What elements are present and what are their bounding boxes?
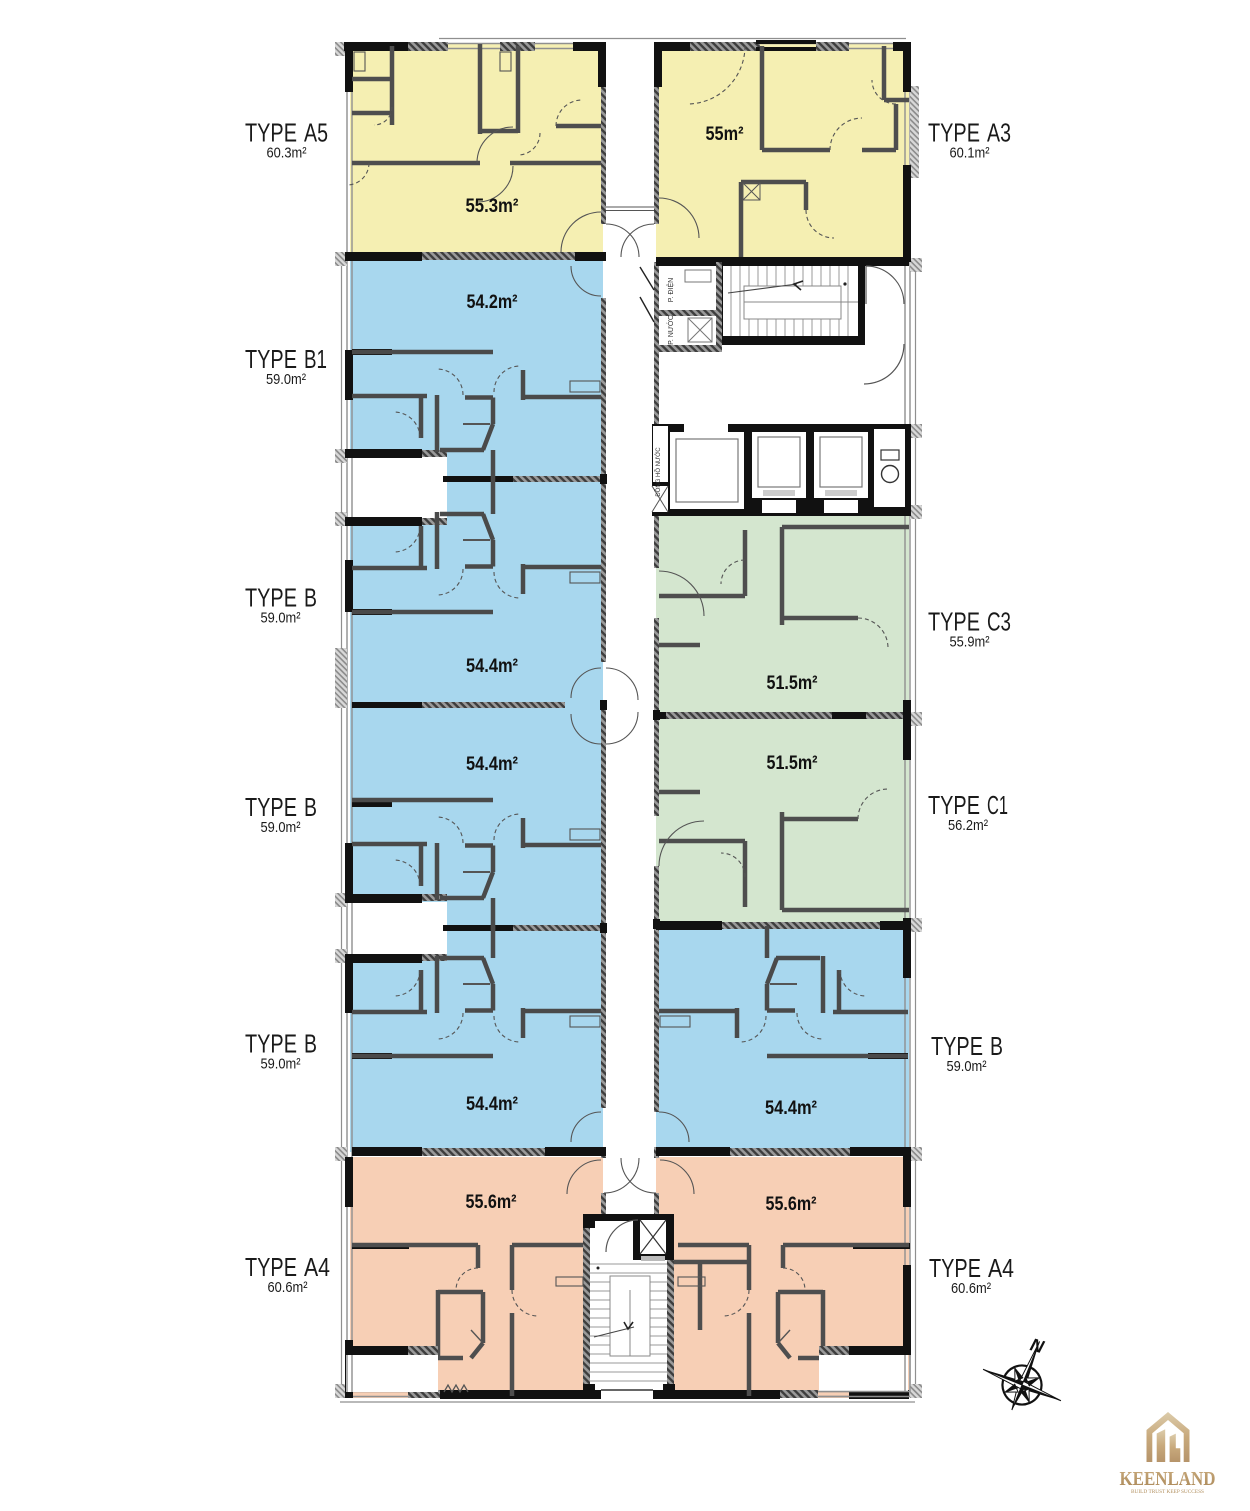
svg-text:54.4m²: 54.4m² [466, 754, 518, 775]
svg-text:TYPEB1: TYPEB1 [245, 344, 327, 374]
svg-text:55.9m²: 55.9m² [950, 634, 990, 651]
svg-text:59.0m²: 59.0m² [266, 371, 306, 388]
svg-text:54.2m²: 54.2m² [467, 292, 518, 313]
svg-text:TYPEB: TYPEB [245, 1029, 317, 1059]
svg-text:TYPEA5: TYPEA5 [245, 118, 328, 148]
svg-text:56.2m²: 56.2m² [948, 817, 988, 834]
svg-text:55m²: 55m² [706, 124, 744, 145]
svg-text:60.3m²: 60.3m² [267, 145, 307, 162]
svg-text:TYPEB: TYPEB [245, 792, 317, 822]
svg-text:51.5m²: 51.5m² [767, 753, 818, 774]
svg-text:TYPEA4: TYPEA4 [929, 1253, 1014, 1283]
svg-text:54.4m²: 54.4m² [466, 656, 518, 677]
svg-text:ĐỒNG HỒ NƯỚC: ĐỒNG HỒ NƯỚC [655, 447, 662, 497]
svg-text:60.1m²: 60.1m² [950, 145, 990, 162]
svg-text:60.6m²: 60.6m² [268, 1279, 308, 1296]
svg-text:BUILD TRUST KEEP SUCCESS: BUILD TRUST KEEP SUCCESS [1131, 1489, 1204, 1495]
svg-text:TYPEB: TYPEB [245, 583, 317, 613]
svg-text:60.6m²: 60.6m² [951, 1280, 991, 1297]
svg-text:51.5m²: 51.5m² [767, 673, 818, 694]
svg-text:54.4m²: 54.4m² [765, 1098, 817, 1119]
svg-text:TYPEA3: TYPEA3 [928, 118, 1011, 148]
svg-text:55.3m²: 55.3m² [466, 196, 519, 217]
svg-text:TYPEC1: TYPEC1 [928, 790, 1008, 820]
svg-text:P. ĐIỆN: P. ĐIỆN [666, 278, 675, 302]
svg-text:TYPEA4: TYPEA4 [245, 1252, 330, 1282]
svg-text:55.6m²: 55.6m² [466, 1192, 517, 1213]
svg-text:59.0m²: 59.0m² [261, 819, 301, 836]
svg-text:55.6m²: 55.6m² [766, 1194, 817, 1215]
svg-text:59.0m²: 59.0m² [947, 1058, 987, 1075]
svg-text:59.0m²: 59.0m² [261, 610, 301, 627]
svg-text:54.4m²: 54.4m² [466, 1094, 518, 1115]
svg-text:P. NƯỚC: P. NƯỚC [666, 315, 675, 345]
svg-text:KEENLAND: KEENLAND [1120, 1468, 1216, 1490]
svg-text:TYPEB: TYPEB [931, 1031, 1003, 1061]
svg-text:59.0m²: 59.0m² [261, 1056, 301, 1073]
svg-text:TYPEC3: TYPEC3 [928, 607, 1011, 637]
